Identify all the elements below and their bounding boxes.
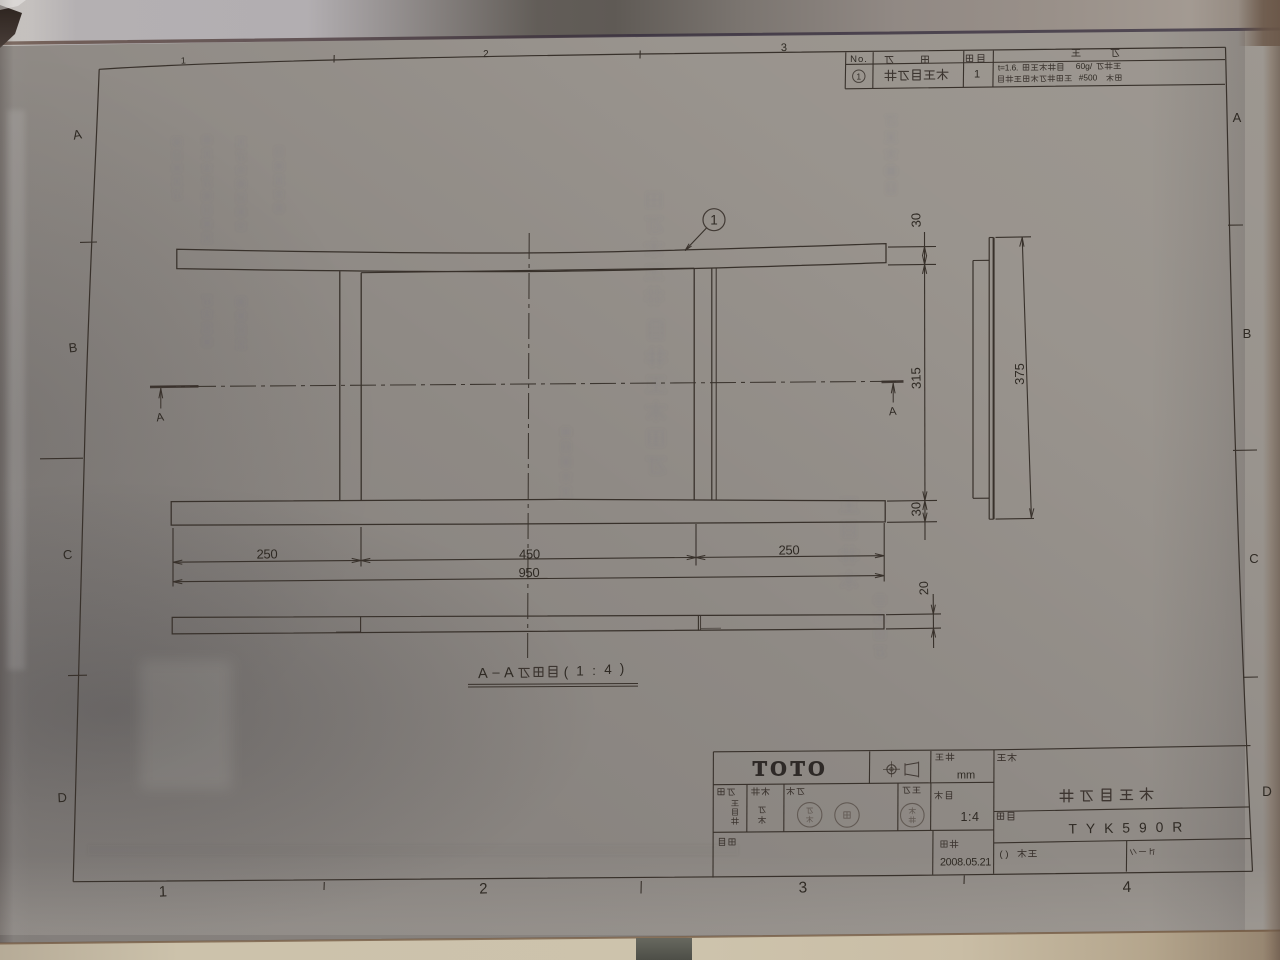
svg-text:A: A: [155, 412, 165, 425]
svg-text:375: 375: [1012, 363, 1027, 385]
svg-text:30: 30: [908, 213, 923, 228]
svg-text:60g/: 60g/: [1076, 61, 1093, 71]
svg-text:A: A: [478, 666, 489, 682]
svg-text:( ): ( ): [1000, 849, 1009, 860]
svg-text:20: 20: [917, 581, 931, 595]
svg-text:D: D: [1262, 784, 1272, 799]
svg-text:mm: mm: [957, 770, 975, 782]
svg-text:4: 4: [604, 662, 612, 677]
svg-text:): ): [620, 661, 625, 676]
svg-text:950: 950: [518, 565, 539, 580]
svg-text:TYK590R: TYK590R: [1068, 819, 1191, 836]
svg-text:B: B: [1243, 326, 1252, 341]
svg-text:C: C: [62, 547, 72, 563]
svg-text::: :: [592, 663, 596, 678]
svg-text:2008.05.21: 2008.05.21: [940, 857, 991, 869]
svg-text:A: A: [504, 665, 515, 681]
svg-text:A: A: [1233, 110, 1242, 125]
svg-text:30: 30: [908, 502, 923, 517]
svg-text:450: 450: [519, 546, 540, 561]
svg-text:1:4: 1:4: [961, 810, 980, 824]
svg-text:–: –: [492, 665, 500, 680]
svg-text:1: 1: [974, 69, 980, 81]
svg-text:No.: No.: [850, 54, 868, 65]
svg-text:1: 1: [181, 55, 187, 65]
svg-text:250: 250: [778, 542, 799, 557]
svg-text:1: 1: [158, 883, 167, 900]
svg-text:1: 1: [856, 71, 861, 81]
svg-text:t=1.6.: t=1.6.: [998, 63, 1018, 73]
svg-text:315: 315: [908, 367, 924, 389]
svg-text:D: D: [57, 790, 67, 805]
svg-text:4: 4: [1122, 879, 1132, 896]
svg-text:(: (: [564, 665, 569, 680]
svg-text:A: A: [72, 126, 83, 142]
svg-text:A: A: [888, 406, 897, 419]
svg-text:2: 2: [479, 880, 488, 897]
svg-text:#500: #500: [1079, 73, 1098, 83]
svg-text:1: 1: [576, 664, 584, 679]
svg-text:B: B: [68, 340, 78, 356]
svg-text:1: 1: [710, 213, 718, 228]
svg-text:250: 250: [256, 546, 277, 561]
svg-text:2: 2: [483, 49, 489, 60]
svg-text:TOTO: TOTO: [753, 757, 829, 781]
svg-text:3: 3: [798, 879, 807, 896]
svg-text:3: 3: [781, 42, 788, 54]
svg-text:C: C: [1249, 551, 1258, 566]
